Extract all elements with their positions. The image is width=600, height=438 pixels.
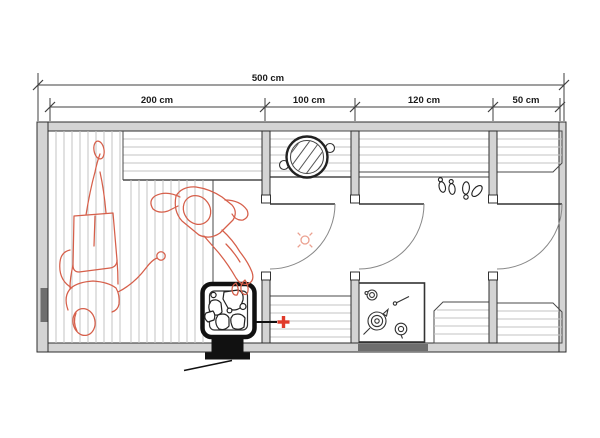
dim-total-label: 500 cm: [252, 73, 284, 84]
footprints-icon: [437, 177, 484, 199]
heater-connection: [255, 316, 290, 328]
dimension-segments: 200 cm 100 cm 120 cm 50 cm: [45, 95, 565, 121]
floor-plan-canvas: 500 cm 200 cm 100 cm 120 cm 50 cm: [0, 0, 600, 438]
floor-plan-drawing: 500 cm 200 cm 100 cm 120 cm 50 cm: [0, 0, 600, 438]
stove-counter: [359, 283, 425, 342]
light-point-icon: [298, 233, 313, 248]
porch-bottom-bench: [497, 303, 562, 343]
dressingroom-bottom-bench: [434, 302, 490, 343]
sauna-upper-bench: [123, 131, 262, 180]
porch-top-bench: [497, 131, 562, 172]
dressingroom-top-bench: [359, 131, 489, 177]
bottom-wall-dark-segment: [358, 344, 428, 351]
door-porch: [497, 204, 562, 269]
bather-bending-figure: [151, 187, 253, 295]
dim-segment-50-label: 50 cm: [513, 95, 540, 106]
sauna-platform-planks: [56, 131, 120, 343]
dim-segment-120-label: 120 cm: [408, 95, 440, 106]
door-washroom: [359, 204, 424, 269]
red-plus-icon: [278, 316, 290, 328]
dim-segment-100-label: 100 cm: [293, 95, 325, 106]
window-marker: [41, 288, 48, 322]
dim-segment-200-label: 200 cm: [141, 95, 173, 106]
cauldron-icon: [280, 136, 335, 178]
